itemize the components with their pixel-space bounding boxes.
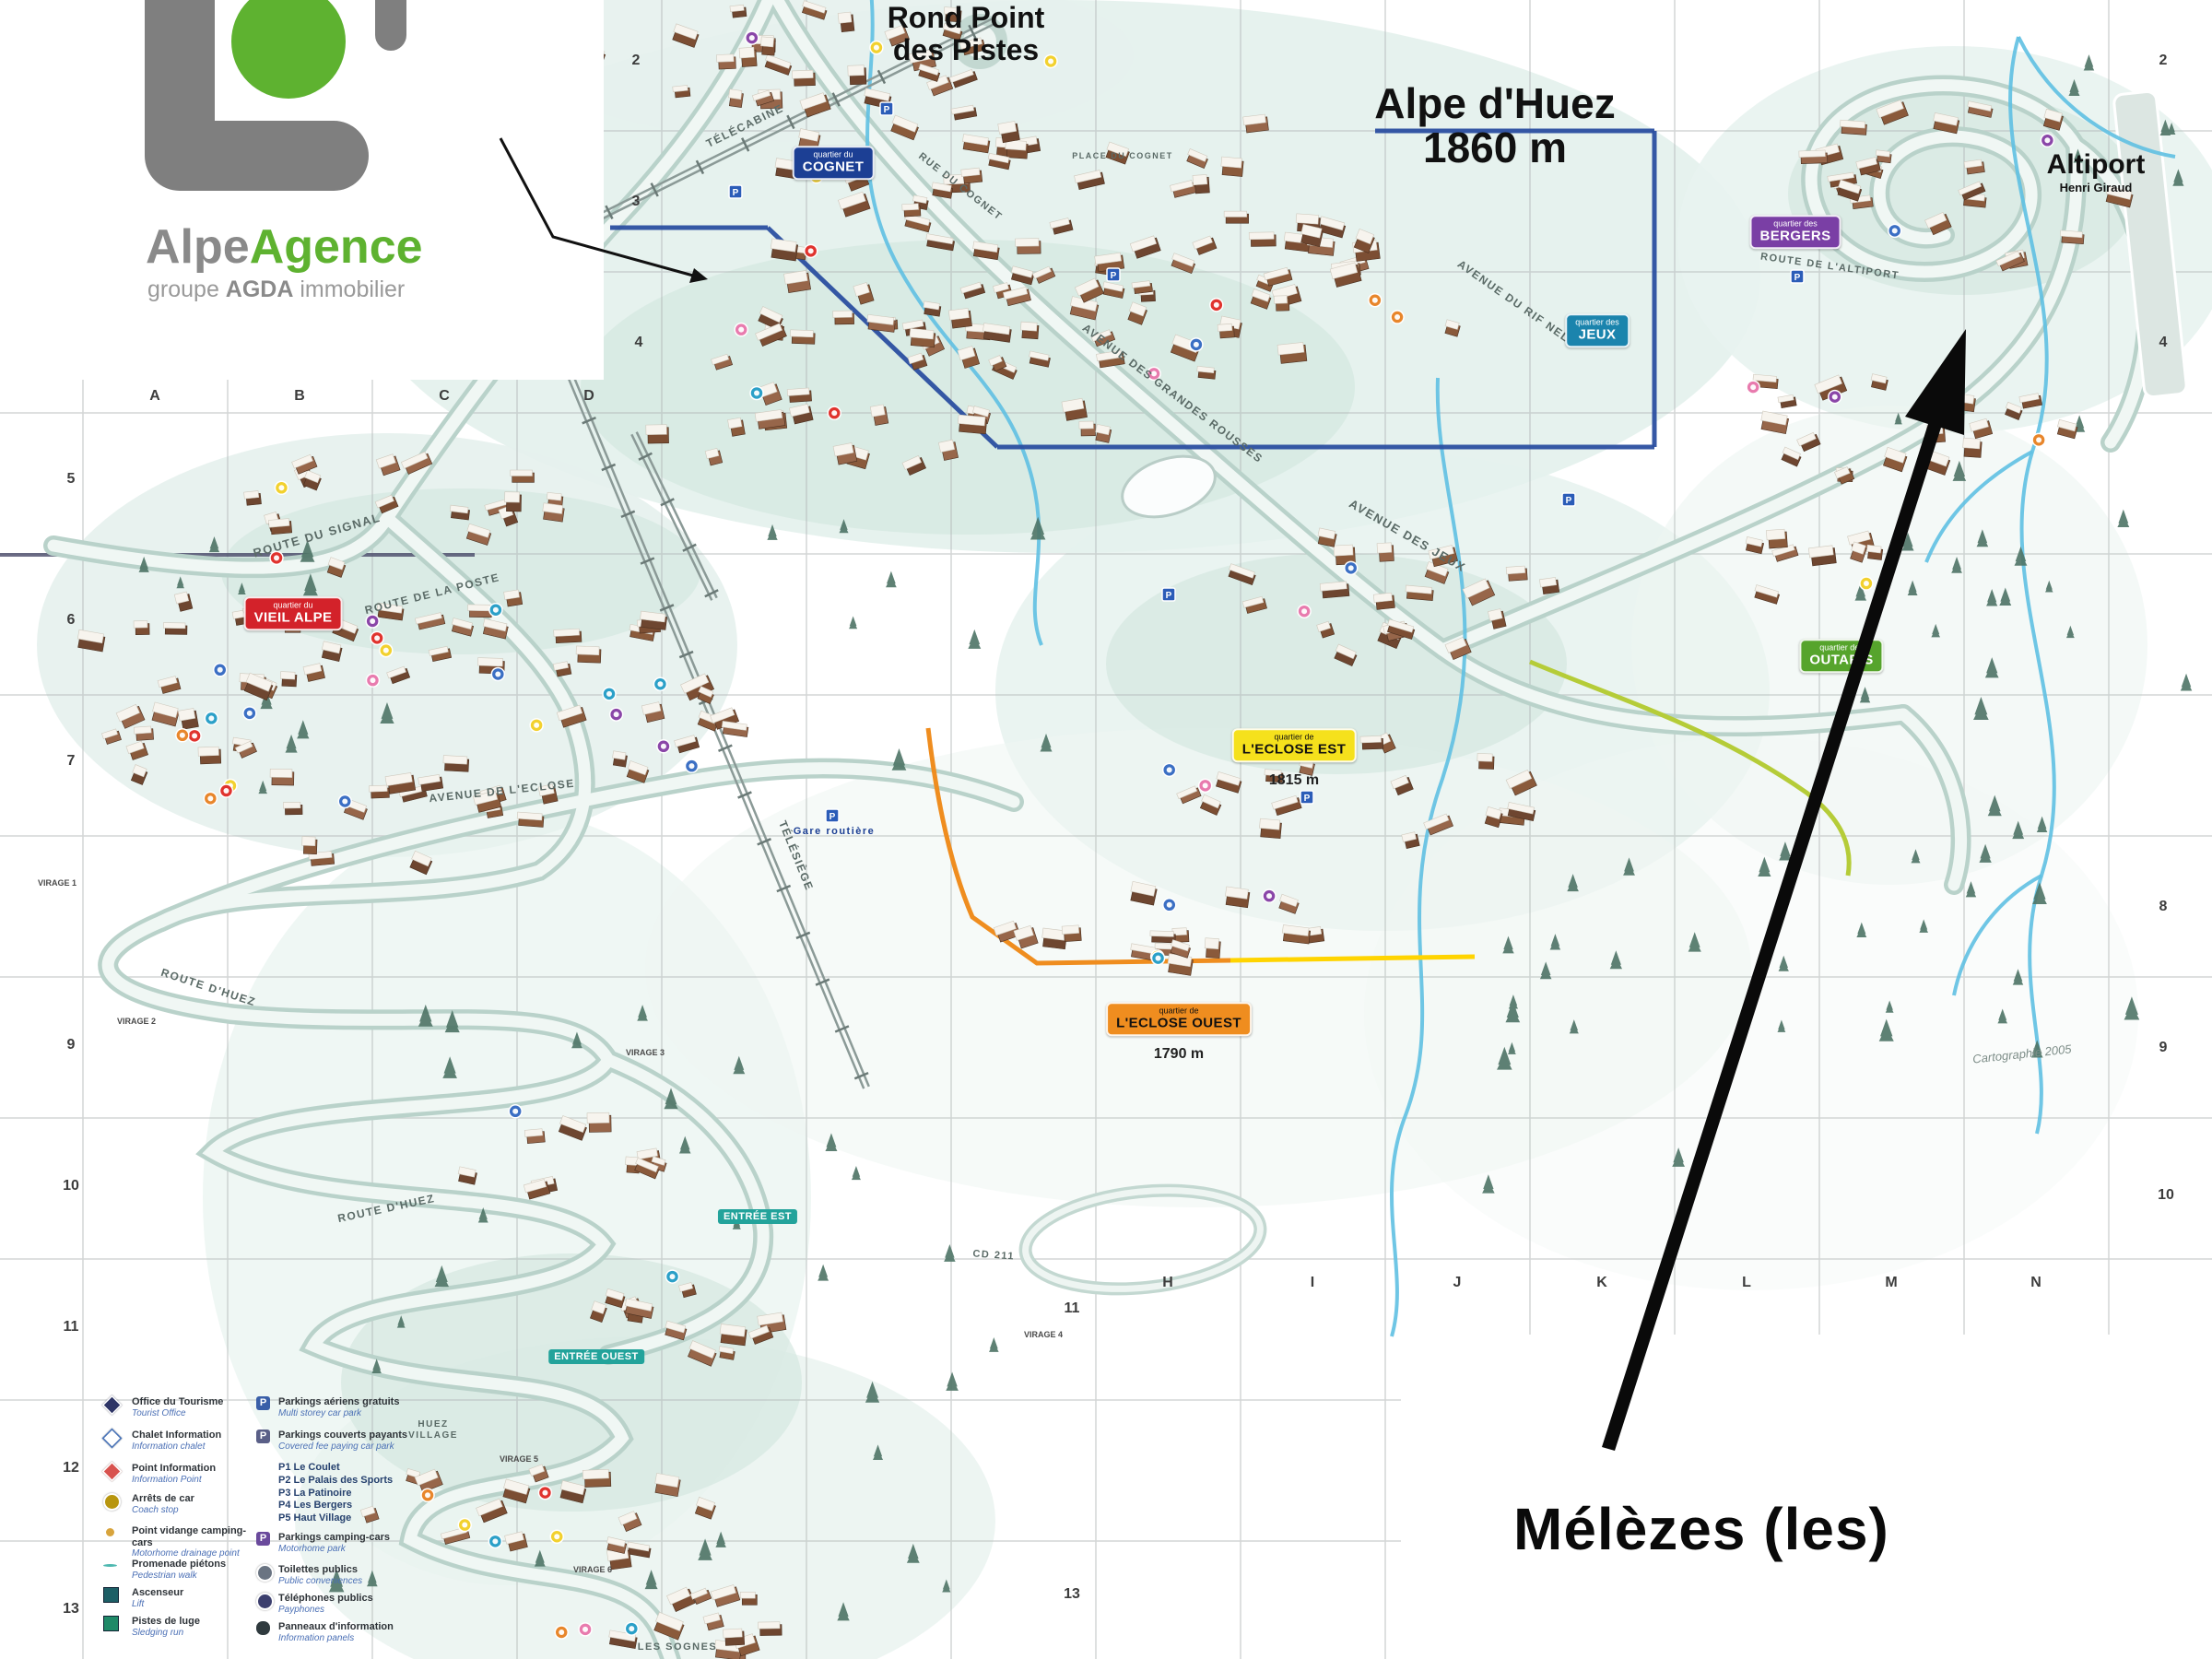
altiport-subname: Henri Giraud — [2047, 181, 2146, 194]
logo-accent-bar — [375, 0, 406, 51]
P-icon: P — [256, 1430, 270, 1443]
grid-number-8: 8 — [2159, 899, 2168, 915]
logo-green-dot — [231, 0, 346, 99]
legend-entry: Chalet InformationInformation chalet — [132, 1430, 261, 1452]
legend-text: Parkings couverts payants — [278, 1430, 435, 1441]
square-icon — [103, 1616, 119, 1631]
legend-text: Point vidange camping-cars — [132, 1525, 261, 1548]
legend-text: Téléphones publics — [278, 1593, 435, 1605]
legend-entry: AscenseurLift — [132, 1587, 261, 1609]
resort-name: Alpe d'Huez — [1374, 81, 1615, 125]
legend-text: Point Information — [132, 1463, 261, 1475]
legend-text: Public conveniences — [278, 1576, 435, 1586]
diamond-icon — [101, 1461, 122, 1481]
entrance-badge: ENTRÉE EST — [718, 1209, 797, 1224]
logo-subtitle: groupe AGDA immobilier — [147, 276, 405, 303]
quarter-altitude: 1815 m — [1269, 772, 1319, 789]
grid-letter-D: D — [583, 388, 594, 405]
legend-text: Office du Tourisme — [132, 1396, 261, 1408]
title-rond-point: Rond Point des Pistes — [888, 2, 1045, 65]
virage-label: VIRAGE 3 — [626, 1048, 665, 1057]
grid-letter-A: A — [149, 388, 160, 405]
circle-icon — [256, 1564, 274, 1582]
pill-icon — [256, 1621, 270, 1635]
legend-text: Parkings camping-cars — [278, 1532, 435, 1544]
quarter-name: L'ECLOSE OUEST — [1116, 1016, 1241, 1031]
legend-text: Motorhome park — [278, 1544, 435, 1554]
legend-text: Ascenseur — [132, 1587, 261, 1599]
quarter-name: OUTARIS — [1809, 653, 1873, 668]
legend-entry: Arrêts de carCoach stop — [132, 1493, 261, 1515]
dot-icon — [106, 1528, 114, 1536]
wave-icon — [103, 1564, 117, 1567]
quarter-name: VIEIL ALPE — [254, 610, 333, 626]
legend-text: Covered fee paying car park — [278, 1441, 435, 1452]
quarter-badge-l-eclose-ouest: quartier deL'ECLOSE OUEST — [1106, 1002, 1252, 1036]
virage-label: VIRAGE 5 — [500, 1454, 538, 1464]
title-altiport: Altiport Henri Giraud — [2047, 151, 2146, 194]
title-rond-point-line1: Rond Point — [888, 2, 1045, 34]
legend-text: Coach stop — [132, 1505, 261, 1515]
logo-word-green: Agence — [250, 220, 423, 274]
grid-number-13: 13 — [63, 1601, 79, 1618]
legend-entry: Panneaux d'informationInformation panels — [278, 1621, 435, 1643]
resort-altitude: 1860 m — [1374, 125, 1615, 170]
grid-letter-H: H — [1162, 1275, 1173, 1291]
quarter-name: BERGERS — [1760, 229, 1831, 244]
legend-text: Multi storey car park — [278, 1408, 435, 1418]
quarter-badge-outaris: quartier desOUTARIS — [1799, 639, 1883, 673]
virage-label: VIRAGE 1 — [38, 878, 76, 888]
grid-letter-J: J — [1453, 1275, 1462, 1291]
legend-text: Payphones — [278, 1605, 435, 1615]
grid-letter-N: N — [2030, 1275, 2041, 1291]
logo-word-gray: Alpe — [146, 220, 250, 274]
legend-entry: Point vidange camping-carsMotorhome drai… — [132, 1525, 261, 1559]
legend-entry: Office du TourismeTourist Office — [132, 1396, 261, 1418]
grid-number-12: 12 — [63, 1460, 79, 1477]
virage-label: VIRAGE 4 — [1024, 1330, 1063, 1339]
P-icon: P — [256, 1396, 270, 1410]
legend-text: Pedestrian walk — [132, 1571, 261, 1581]
title-rond-point-line2: des Pistes — [888, 34, 1045, 66]
logo-subtitle-post: immobilier — [293, 276, 405, 302]
legend-text: Information chalet — [132, 1441, 261, 1452]
legend-text: Information Point — [132, 1475, 261, 1485]
quarter-badge-bergers: quartier desBERGERS — [1750, 215, 1841, 249]
logo-subtitle-bold: AGDA — [226, 276, 294, 302]
grid-number-9: 9 — [2159, 1040, 2168, 1056]
quarter-name: L'ECLOSE EST — [1242, 742, 1347, 758]
legend-entry: Téléphones publicsPayphones — [278, 1593, 435, 1615]
callout-melezes: Mélèzes (les) — [1513, 1495, 1889, 1563]
grid-letter-K: K — [1596, 1275, 1607, 1291]
legend-text: Tourist Office — [132, 1408, 261, 1418]
quarter-badge-cognet: quartier duCOGNET — [793, 146, 875, 180]
quarter-badge-jeux: quartier desJEUX — [1565, 313, 1630, 347]
legend-text: Promenade piétons — [132, 1559, 261, 1571]
grid-number-5: 5 — [67, 471, 76, 488]
legend-text: Sledging run — [132, 1628, 261, 1638]
altiport-name: Altiport — [2047, 151, 2146, 179]
virage-label: VIRAGE 6 — [573, 1565, 612, 1574]
grid-number-4: 4 — [2159, 335, 2168, 351]
diamond-icon — [101, 1394, 122, 1415]
legend-parking-list: P1 Le Coulet P2 Le Palais des Sports P3 … — [278, 1462, 393, 1525]
legend-entry: Point InformationInformation Point — [132, 1463, 261, 1485]
diamond-icon — [101, 1428, 122, 1448]
title-resort: Alpe d'Huez 1860 m — [1374, 81, 1615, 171]
quarter-badge-l-eclose-est: quartier deL'ECLOSE EST — [1232, 728, 1357, 762]
logo-wordmark: AlpeAgence — [146, 219, 423, 275]
grid-letter-L: L — [1742, 1275, 1751, 1291]
grid-number-9: 9 — [67, 1037, 76, 1053]
square-icon — [103, 1587, 119, 1603]
grid-letter-I: I — [1311, 1275, 1314, 1291]
map-credit: Cartographie 2005 — [1972, 1041, 2073, 1065]
grid-number-13: 13 — [1064, 1586, 1080, 1603]
legend-text: Lift — [132, 1599, 261, 1609]
grid-number-6: 6 — [67, 612, 76, 629]
quarter-badge-vieil-alpe: quartier duVIEIL ALPE — [244, 596, 343, 630]
legend-text: Chalet Information — [132, 1430, 261, 1441]
grid-letter-B: B — [294, 388, 305, 405]
legend-entry: Parkings camping-carsMotorhome park — [278, 1532, 435, 1554]
grid-number-11: 11 — [64, 1319, 79, 1335]
map-page: PPPPPPPPROUTE DU SIGNALROUTE DE LA POSTE… — [0, 0, 2212, 1659]
quarter-name: COGNET — [803, 159, 865, 175]
grid-number-10: 10 — [63, 1178, 79, 1194]
legend-text: Motorhome drainage point — [132, 1548, 261, 1559]
quarter-altitude: 1790 m — [1154, 1046, 1204, 1063]
legend-text: Information panels — [278, 1633, 435, 1643]
agency-logo: AlpeAgence groupe AGDA immobilier — [0, 0, 479, 313]
quarter-name: JEUX — [1575, 327, 1619, 343]
legend-text: Panneaux d'information — [278, 1621, 435, 1633]
P-icon: P — [256, 1532, 270, 1546]
legend-text: Toilettes publics — [278, 1564, 435, 1576]
virage-label: VIRAGE 2 — [117, 1017, 156, 1026]
grid-number-3: 3 — [632, 194, 641, 210]
circle-icon — [256, 1593, 274, 1610]
logo-subtitle-pre: groupe — [147, 276, 226, 302]
legend-text: Parkings aériens gratuits — [278, 1396, 435, 1408]
legend-text: Pistes de luge — [132, 1616, 261, 1628]
grid-number-10: 10 — [2158, 1187, 2174, 1204]
grid-letter-C: C — [439, 388, 450, 405]
grid-number-7: 7 — [67, 753, 76, 770]
label-layer: AlpeAgence groupe AGDA immobilier Rond P… — [0, 0, 2212, 1659]
legend-text: Arrêts de car — [132, 1493, 261, 1505]
legend-entry: Parkings couverts payantsCovered fee pay… — [278, 1430, 435, 1452]
legend-entry: Pistes de lugeSledging run — [132, 1616, 261, 1638]
entrance-badge: ENTRÉE OUEST — [548, 1349, 644, 1364]
legend-entry: Parkings aériens gratuitsMulti storey ca… — [278, 1396, 435, 1418]
legend-entry: Promenade piétonsPedestrian walk — [132, 1559, 261, 1581]
legend-entry: Toilettes publicsPublic conveniences — [278, 1564, 435, 1586]
circle-icon — [103, 1493, 121, 1511]
grid-letter-M: M — [1885, 1275, 1897, 1291]
grid-number-2: 2 — [2159, 53, 2168, 69]
grid-number-2: 2 — [632, 53, 641, 69]
grid-number-4: 4 — [635, 335, 643, 351]
grid-number-11: 11 — [1065, 1300, 1080, 1317]
